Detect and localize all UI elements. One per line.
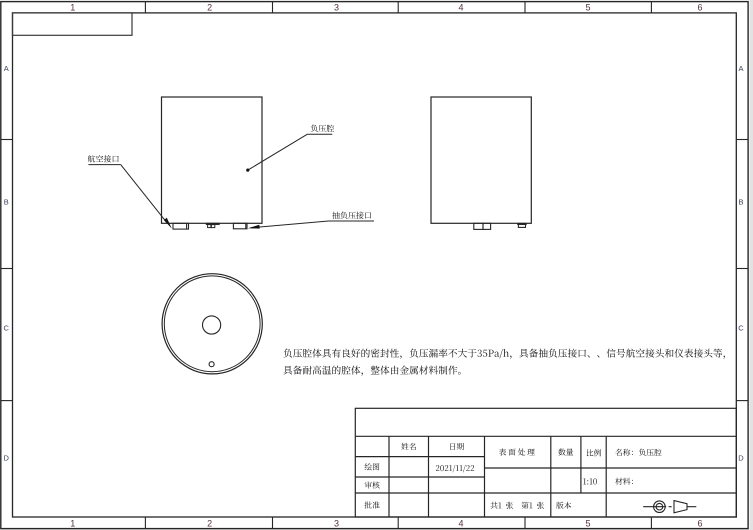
svg-text:C: C (738, 324, 744, 333)
svg-text:5: 5 (585, 3, 590, 13)
svg-text:5: 5 (585, 518, 590, 528)
svg-text:2: 2 (207, 518, 212, 528)
svg-text:D: D (738, 454, 744, 463)
svg-text:C: C (3, 324, 9, 333)
svg-text:3: 3 (334, 3, 339, 13)
svg-text:B: B (738, 198, 743, 207)
svg-text:4: 4 (458, 518, 463, 528)
svg-text:A: A (4, 64, 9, 73)
svg-text:3: 3 (334, 518, 339, 528)
svg-text:B: B (4, 198, 9, 207)
svg-text:4: 4 (458, 3, 463, 13)
svg-text:1: 1 (70, 3, 75, 13)
svg-text:D: D (3, 454, 9, 463)
svg-text:2: 2 (207, 3, 212, 13)
svg-text:A: A (738, 64, 743, 73)
svg-text:6: 6 (697, 3, 702, 13)
svg-text:1: 1 (70, 518, 75, 528)
svg-text:6: 6 (697, 518, 702, 528)
